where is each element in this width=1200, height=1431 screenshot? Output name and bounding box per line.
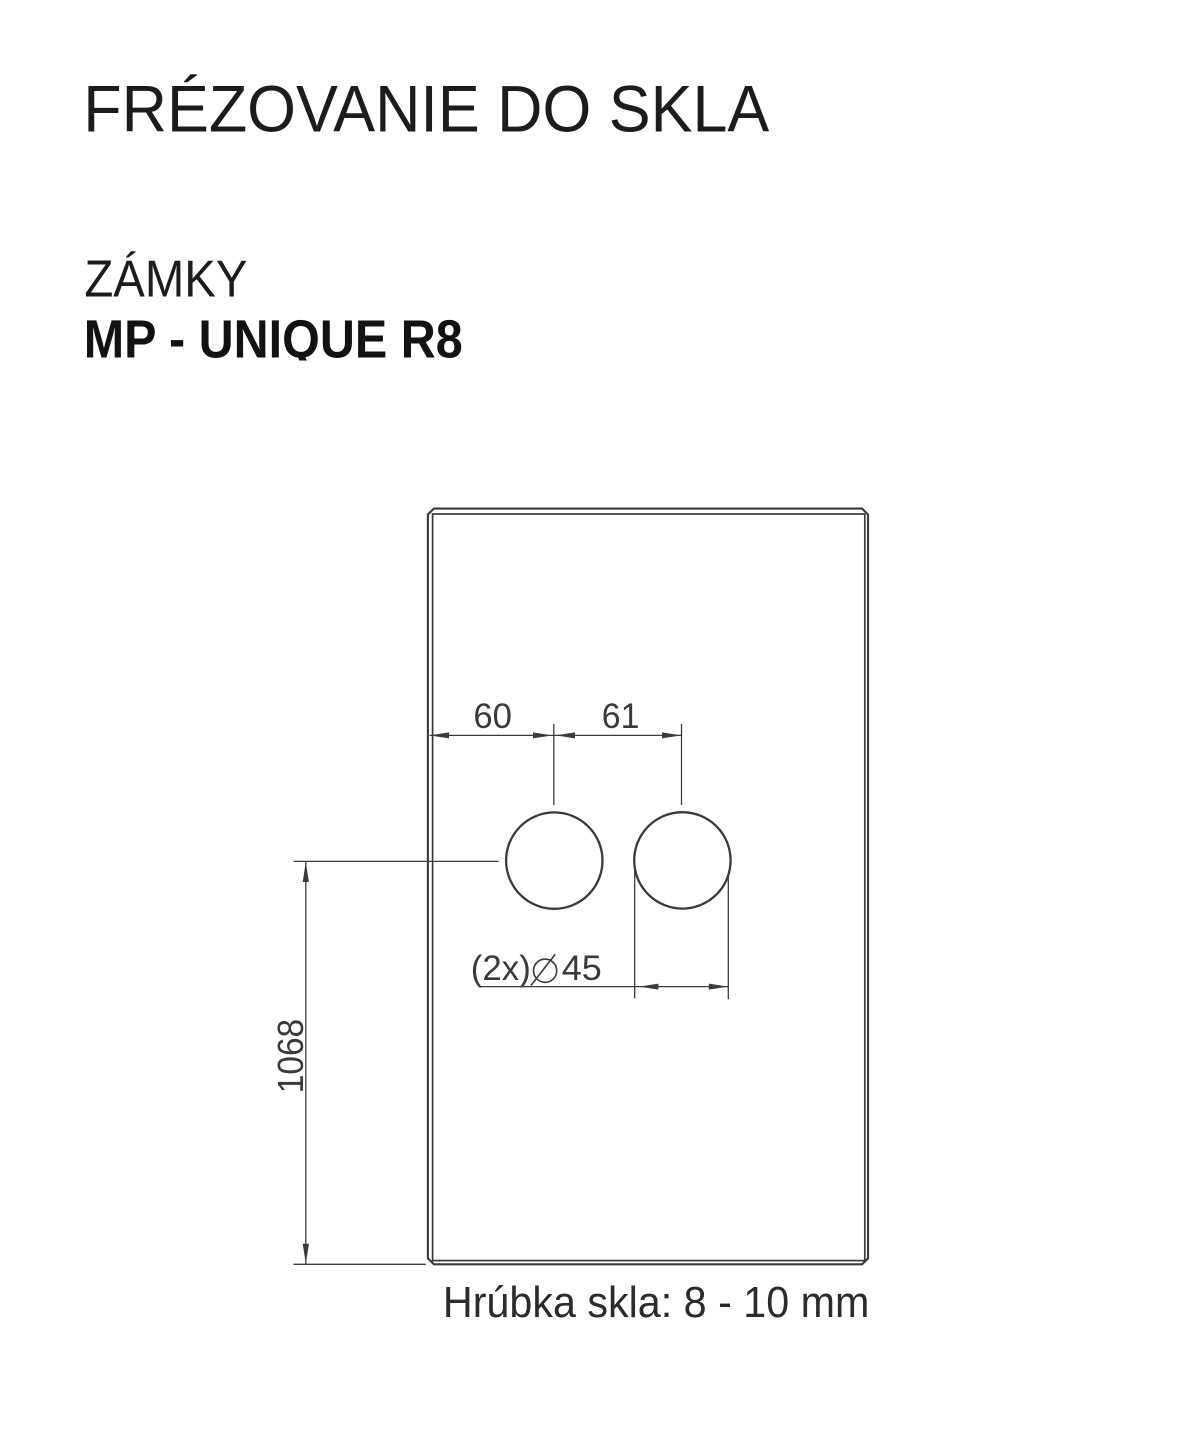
svg-text:(2x): (2x) [471,948,531,988]
svg-text:1068: 1068 [270,1019,311,1093]
svg-text:45: 45 [562,948,602,988]
svg-text:FRÉZOVANIE DO SKLA: FRÉZOVANIE DO SKLA [83,72,769,146]
svg-text:MP - UNIQUE R8: MP - UNIQUE R8 [84,309,463,369]
svg-text:60: 60 [473,696,512,736]
svg-text:Hrúbka skla: 8 - 10 mm: Hrúbka skla: 8 - 10 mm [443,1278,870,1327]
svg-text:ZÁMKY: ZÁMKY [84,249,247,307]
svg-text:61: 61 [602,696,640,736]
